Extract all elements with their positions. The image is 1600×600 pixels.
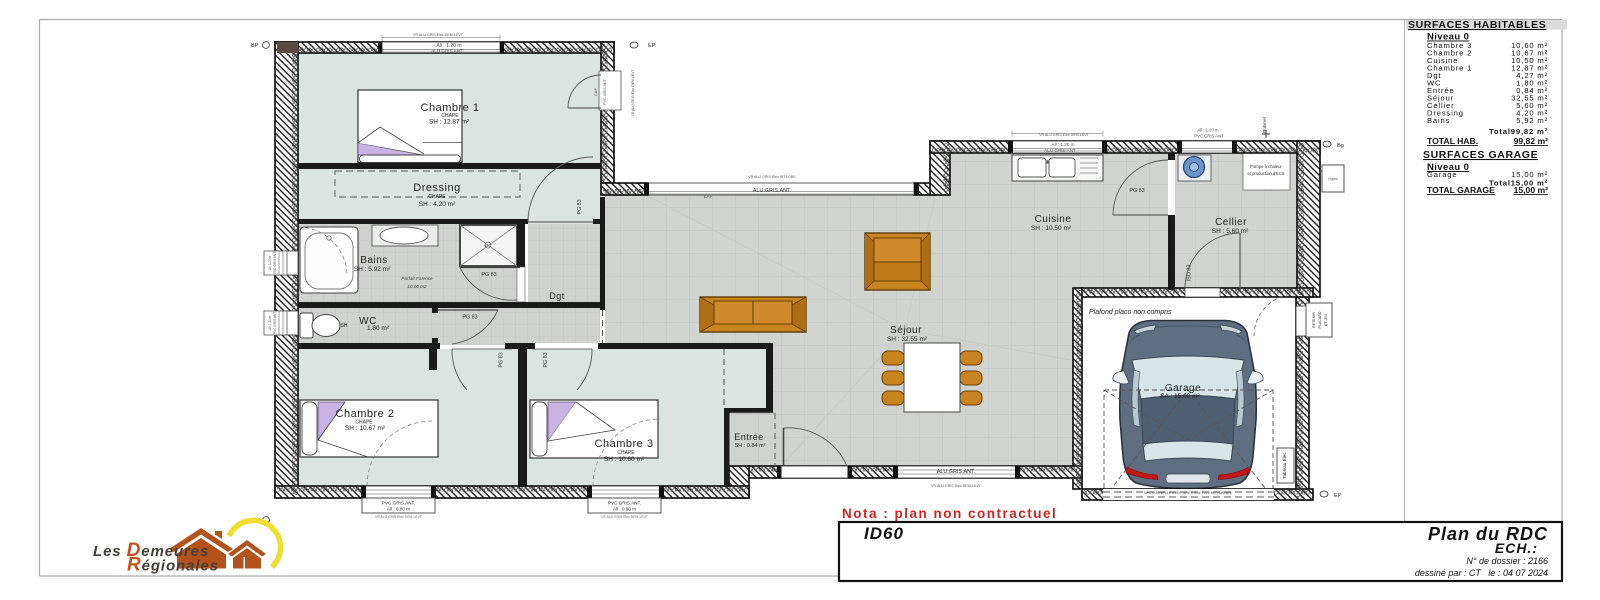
svg-text:All : 1.20 m: All : 1.20 m bbox=[1052, 142, 1075, 147]
svg-text:All 1.20m: All 1.20m bbox=[268, 316, 272, 330]
svg-text:PG 83: PG 83 bbox=[577, 199, 583, 214]
svg-text:dessiné par : CT le : 04 07: dessiné par : CT le : 04 07 2024 bbox=[1415, 568, 1548, 578]
svg-text:Séjour: Séjour bbox=[890, 325, 922, 336]
svg-text:PVC GRIS ANT: PVC GRIS ANT bbox=[273, 312, 277, 334]
svg-text:Dgt: Dgt bbox=[549, 291, 565, 301]
svg-text:All : 0.80 m: All : 0.80 m bbox=[387, 507, 410, 512]
svg-text:SH : 12.87 m²: SH : 12.87 m² bbox=[429, 119, 470, 126]
svg-text:PLACARD: PLACARD bbox=[1318, 311, 1322, 328]
svg-text:Cuisine: Cuisine bbox=[1035, 214, 1072, 225]
svg-text:SURFACES GARAGE: SURFACES GARAGE bbox=[1423, 149, 1538, 161]
svg-text:Pompe à chaleur: Pompe à chaleur bbox=[1250, 164, 1282, 169]
svg-text:CHAPE: CHAPE bbox=[428, 194, 446, 200]
svg-text:VR ALU GRIS Elec DEM-LEVT: VR ALU GRIS Elec DEM-LEVT bbox=[601, 515, 648, 519]
svg-text:SH : 10.60 m²: SH : 10.60 m² bbox=[604, 456, 645, 463]
svg-text:SURFACES HABITABLES: SURFACES HABITABLES bbox=[1408, 19, 1546, 31]
svg-text:SA : 15.00 m²: SA : 15.00 m² bbox=[1160, 393, 1200, 400]
svg-text:SH : 5.92 m²: SH : 5.92 m² bbox=[354, 266, 391, 273]
svg-text:PVC GRIS ANT: PVC GRIS ANT bbox=[1194, 134, 1224, 139]
svg-text:ISO 83: ISO 83 bbox=[1187, 265, 1193, 282]
svg-text:SH : 4.20 m²: SH : 4.20 m² bbox=[419, 201, 456, 208]
svg-text:PG 83: PG 83 bbox=[543, 352, 549, 367]
svg-text:PG 83: PG 83 bbox=[462, 315, 477, 321]
svg-text:Nota : plan non contractuel: Nota : plan non contractuel bbox=[842, 506, 1057, 521]
svg-text:1.80 m²: 1.80 m² bbox=[367, 325, 390, 332]
svg-text:Parfait Faïence: Parfait Faïence bbox=[401, 276, 433, 281]
svg-text:VR ALU GRIS Elec INTEGRE: VR ALU GRIS Elec INTEGRE bbox=[748, 175, 796, 179]
svg-text:ALU GRIS ANT: ALU GRIS ANT bbox=[1044, 148, 1076, 153]
svg-text:SECTIONNELLE AVEC GRES RAL 701: SECTIONNELLE AVEC GRES RAL 7016 MOTORISE… bbox=[1144, 491, 1233, 495]
svg-text:et production d'ECS: et production d'ECS bbox=[1247, 171, 1284, 176]
svg-text:Garage: Garage bbox=[1427, 170, 1457, 179]
svg-text:EAF: EAF bbox=[593, 88, 598, 96]
svg-text:PG 83: PG 83 bbox=[499, 352, 505, 367]
svg-text:ECH.:: ECH.: bbox=[1495, 540, 1538, 556]
svg-text:regard: regard bbox=[1328, 177, 1337, 181]
svg-text:VR ALU GRIS Elec DEM-LEVT: VR ALU GRIS Elec DEM-LEVT bbox=[375, 515, 422, 519]
svg-text:SH : 0.84 m²: SH : 0.84 m² bbox=[735, 443, 766, 449]
svg-text:15,00 m²: 15,00 m² bbox=[1514, 185, 1549, 195]
svg-text:All 1.20m: All 1.20m bbox=[268, 256, 272, 270]
svg-text:EP: EP bbox=[648, 43, 656, 49]
svg-text:TOTAL GARAGE: TOTAL GARAGE bbox=[1427, 185, 1495, 195]
svg-text:All : 1.20 m: All : 1.20 m bbox=[1198, 128, 1219, 133]
svg-text:Total99,82 m²: Total99,82 m² bbox=[1489, 127, 1548, 136]
svg-text:VR ALU GRIS Elec DEM-LEVT: VR ALU GRIS Elec DEM-LEVT bbox=[631, 70, 635, 117]
svg-text:ET JEU: ET JEU bbox=[1324, 313, 1328, 326]
svg-text:Dressing: Dressing bbox=[413, 182, 460, 194]
svg-text:EAF: EAF bbox=[704, 194, 713, 199]
svg-text:10.00 m2: 10.00 m2 bbox=[407, 284, 427, 289]
svg-text:SH : 32.55 m²: SH : 32.55 m² bbox=[887, 336, 928, 343]
svg-text:PVC.GRIS.ANT.: PVC.GRIS.ANT. bbox=[382, 501, 415, 506]
svg-text:SH : 10.67 m²: SH : 10.67 m² bbox=[345, 425, 386, 432]
svg-text:Bains: Bains bbox=[360, 255, 388, 266]
svg-text:Chambre 2: Chambre 2 bbox=[336, 408, 395, 420]
svg-text:5,92 m²: 5,92 m² bbox=[1516, 116, 1548, 125]
svg-text:BP: BP bbox=[251, 43, 259, 49]
svg-text:N° de dossier : 2166: N° de dossier : 2166 bbox=[1466, 556, 1548, 566]
svg-text:Bp: Bp bbox=[1337, 143, 1344, 149]
svg-text:SH : 4.27 m²: SH : 4.27 m² bbox=[538, 302, 575, 309]
svg-text:ALU.GRIS.ANT.: ALU.GRIS.ANT. bbox=[753, 188, 791, 194]
svg-text:ALU GRIS ANT: ALU GRIS ANT bbox=[431, 49, 463, 54]
svg-text:TOTAL HAB.: TOTAL HAB. bbox=[1427, 136, 1478, 146]
svg-text:VR ALU GRIS Elec DEM-LEVT: VR ALU GRIS Elec DEM-LEVT bbox=[931, 484, 982, 488]
svg-text:Cellier: Cellier bbox=[1215, 217, 1247, 228]
svg-text:EAF: EAF bbox=[768, 468, 777, 473]
svg-text:VR ALU GRIS Elec DEM-LEVT: VR ALU GRIS Elec DEM-LEVT bbox=[413, 33, 464, 37]
svg-text:Chambre 3: Chambre 3 bbox=[595, 438, 654, 450]
svg-text:Régionales: Régionales bbox=[127, 555, 219, 576]
svg-text:PVC.GRIS.ANT.: PVC.GRIS.ANT. bbox=[608, 501, 641, 506]
svg-text:PG 83: PG 83 bbox=[1129, 188, 1144, 194]
svg-text:SH: SH bbox=[341, 323, 348, 329]
svg-text:99,82 m²: 99,82 m² bbox=[1514, 136, 1549, 146]
svg-text:Bains: Bains bbox=[1427, 116, 1450, 125]
svg-text:EP: EP bbox=[1334, 493, 1342, 499]
svg-text:ALU.GRIS.ANT.: ALU.GRIS.ANT. bbox=[937, 469, 975, 475]
svg-text:Entrée: Entrée bbox=[734, 432, 764, 442]
svg-text:VR ALU GRIS Elec DEM-LEVT: VR ALU GRIS Elec DEM-LEVT bbox=[1039, 133, 1090, 137]
svg-text:PVC.GRIS.ANT: PVC.GRIS.ANT bbox=[603, 79, 607, 105]
svg-text:SH : 5.60 m²: SH : 5.60 m² bbox=[1212, 228, 1249, 235]
svg-text:Plafond placo non compris: Plafond placo non compris bbox=[1089, 309, 1172, 316]
svg-text:Tableau Elec.: Tableau Elec. bbox=[1282, 451, 1287, 479]
svg-text:ID60: ID60 bbox=[864, 524, 904, 543]
svg-text:All : 0.80 m: All : 0.80 m bbox=[613, 507, 636, 512]
svg-text:PG 83: PG 83 bbox=[481, 272, 496, 278]
svg-text:RETENIR: RETENIR bbox=[1312, 312, 1316, 328]
svg-text:PVC GRIS ANT: PVC GRIS ANT bbox=[273, 252, 277, 274]
svg-text:SH : 10.50 m²: SH : 10.50 m² bbox=[1031, 225, 1072, 232]
